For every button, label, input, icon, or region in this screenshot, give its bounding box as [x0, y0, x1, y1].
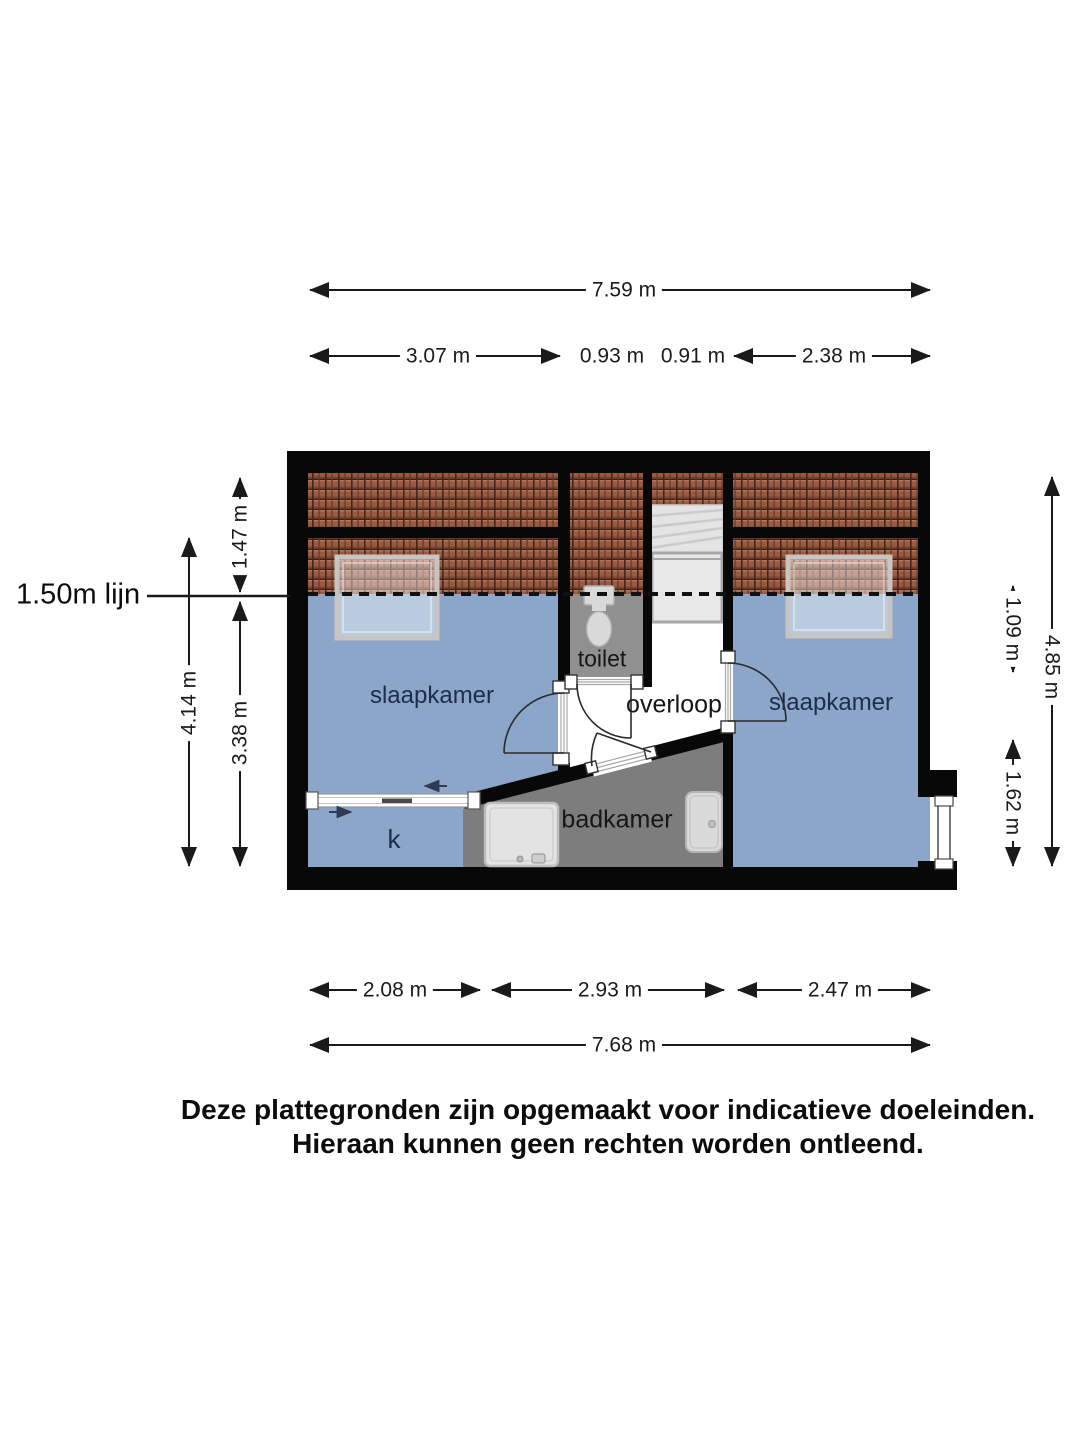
disclaimer-line-2: Hieraan kunnen geen rechten worden ontle…: [292, 1130, 924, 1158]
room-label-landing: overloop: [626, 693, 722, 718]
dim-label-right-bottom: 1.62 m: [1003, 765, 1024, 841]
roof-beam-right: [733, 527, 918, 538]
dim-label-top-total: 7.59 m: [586, 280, 662, 301]
right-window: [930, 796, 957, 869]
roof-beam-left: [308, 527, 558, 538]
dim-label-bottom-seg2: 2.93 m: [572, 980, 648, 1001]
floorplan-svg: [0, 0, 1080, 1440]
dim-label-top-seg1: 3.07 m: [400, 346, 476, 367]
line-150-label: 1.50m lijn: [16, 581, 140, 610]
skylight-right: [788, 557, 890, 636]
stairs: [650, 505, 723, 622]
wall-left: [287, 451, 308, 890]
room-label-bathroom: badkamer: [561, 808, 672, 833]
dim-label-left-top: 1.47 m: [230, 499, 251, 575]
wall-landing-right: [723, 473, 733, 651]
room-label-bedroom-left: slaapkamer: [370, 684, 494, 708]
wall-toilet-right: [643, 473, 652, 687]
wall-right-bump: [918, 770, 957, 797]
bedroom-right-recess-floor: [918, 797, 930, 861]
dim-label-bottom-total: 7.68 m: [586, 1035, 662, 1056]
wall-toilet-left: [558, 473, 570, 687]
dim-label-right-full: 4.85 m: [1042, 629, 1063, 705]
bathtub: [686, 792, 722, 852]
window-right-frame: [938, 805, 950, 861]
wall-right: [918, 451, 930, 770]
dim-label-top-seg3: 0.91 m: [655, 346, 731, 367]
room-label-closet: k: [388, 826, 401, 852]
room-label-bedroom-right: slaapkamer: [769, 691, 893, 715]
dim-label-left-bottom: 3.38 m: [230, 695, 251, 771]
dim-label-right-top: 1.09 m: [1003, 591, 1024, 667]
wall-bottom: [287, 867, 930, 890]
dim-label-top-seg2: 0.93 m: [574, 346, 650, 367]
dim-label-bottom-seg3: 2.47 m: [802, 980, 878, 1001]
wall-top: [287, 451, 930, 473]
dim-label-left-full: 4.14 m: [179, 665, 200, 741]
disclaimer-line-1: Deze plattegronden zijn opgemaakt voor i…: [181, 1096, 1035, 1124]
floorplan-page: 1.50m lijn slaapkamer slaapkamer toilet …: [0, 0, 1080, 1440]
skylight-left: [337, 557, 437, 638]
dim-label-bottom-seg1: 2.08 m: [357, 980, 433, 1001]
wall-bathroom-right: [723, 733, 733, 867]
room-label-toilet: toilet: [578, 648, 627, 671]
dim-label-top-seg4: 2.38 m: [796, 346, 872, 367]
shower-tray: [485, 803, 558, 866]
